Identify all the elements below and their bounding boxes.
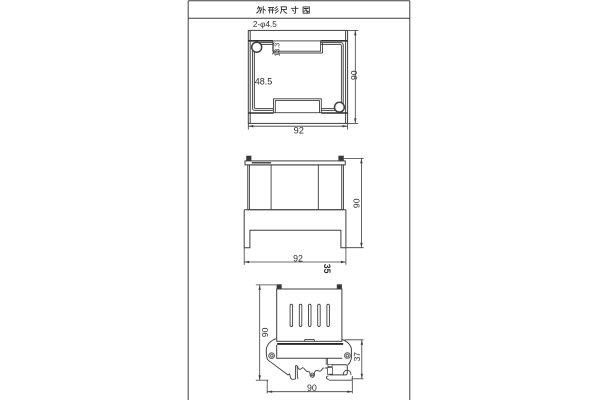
svg-text:48.5: 48.5 bbox=[255, 77, 273, 87]
svg-text:92: 92 bbox=[294, 126, 304, 136]
svg-text:13.3: 13.3 bbox=[274, 43, 281, 57]
svg-text:37: 37 bbox=[352, 352, 362, 362]
svg-text:90: 90 bbox=[349, 70, 359, 80]
svg-text:35: 35 bbox=[322, 264, 332, 274]
svg-text:90: 90 bbox=[307, 383, 317, 393]
svg-text:90: 90 bbox=[260, 327, 270, 337]
svg-text:90: 90 bbox=[352, 198, 362, 208]
svg-text:2-φ4.5: 2-φ4.5 bbox=[253, 20, 277, 29]
svg-text:92: 92 bbox=[293, 253, 303, 263]
